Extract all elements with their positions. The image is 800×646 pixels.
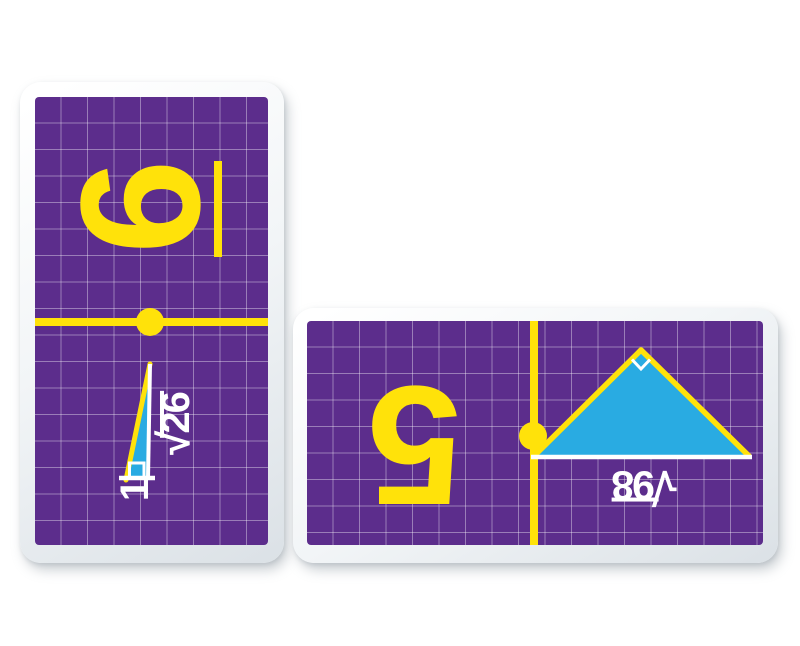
- domino-card-horizontal[interactable]: 5 √98: [293, 308, 778, 563]
- radical-sign: √: [150, 433, 199, 455]
- triangle-edge-white-long: [148, 364, 150, 479]
- radical-sign: √: [654, 462, 677, 513]
- triangle-fill: [534, 350, 749, 457]
- radicand-98: 98: [611, 465, 656, 506]
- scene: 6 √26 1 5: [0, 0, 800, 646]
- triangle-figure-thin: [35, 97, 268, 545]
- radicand-26: 26: [156, 391, 196, 435]
- hypotenuse-label-sqrt98: √98: [611, 464, 676, 509]
- card-face-grid: 5 √98: [307, 321, 763, 545]
- domino-card-vertical[interactable]: 6 √26 1: [20, 82, 284, 563]
- triangle-figure-isosceles: [307, 321, 763, 545]
- hypotenuse-label-sqrt26: √26: [153, 391, 197, 455]
- card-face-grid: 6 √26 1: [35, 97, 268, 545]
- leg-label-one: 1: [115, 481, 155, 501]
